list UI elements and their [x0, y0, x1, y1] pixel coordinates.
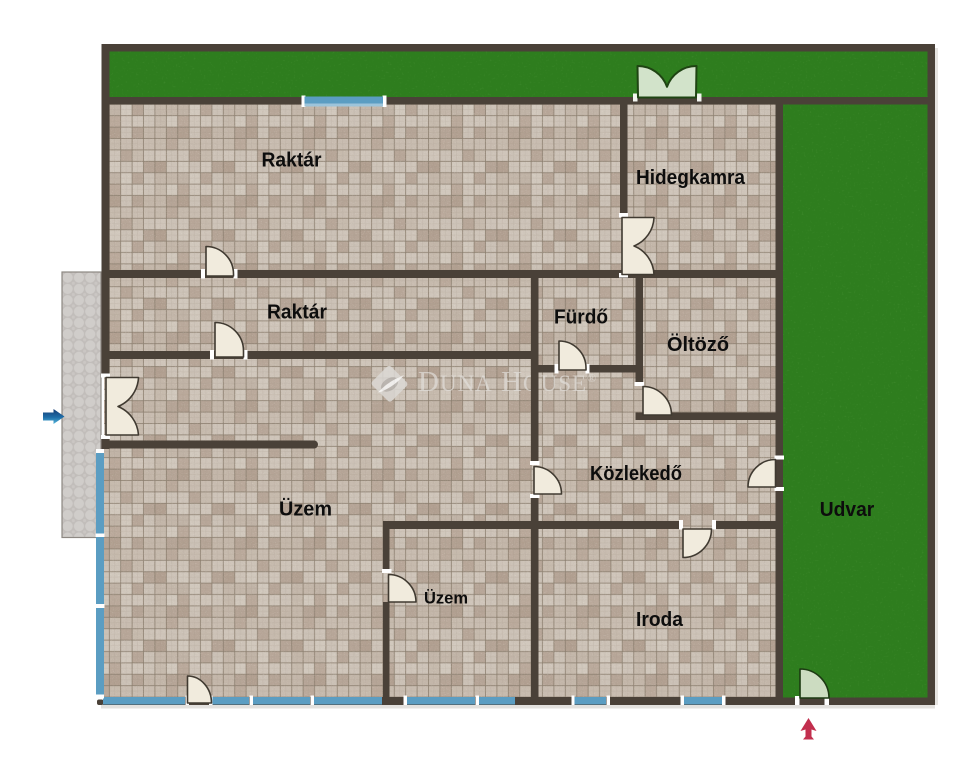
svg-text:Üzem: Üzem: [279, 498, 332, 521]
svg-text:Iroda: Iroda: [636, 609, 684, 631]
svg-text:Üzem: Üzem: [424, 589, 468, 608]
svg-text:Fürdő: Fürdő: [554, 307, 608, 329]
svg-text:Hidegkamra: Hidegkamra: [636, 167, 746, 189]
svg-text:Raktár: Raktár: [267, 302, 327, 324]
svg-text:Raktár: Raktár: [262, 150, 322, 172]
svg-text:Közlekedő: Közlekedő: [590, 463, 682, 485]
svg-text:Udvar: Udvar: [820, 499, 875, 521]
svg-text:Öltöző: Öltöző: [667, 333, 729, 356]
